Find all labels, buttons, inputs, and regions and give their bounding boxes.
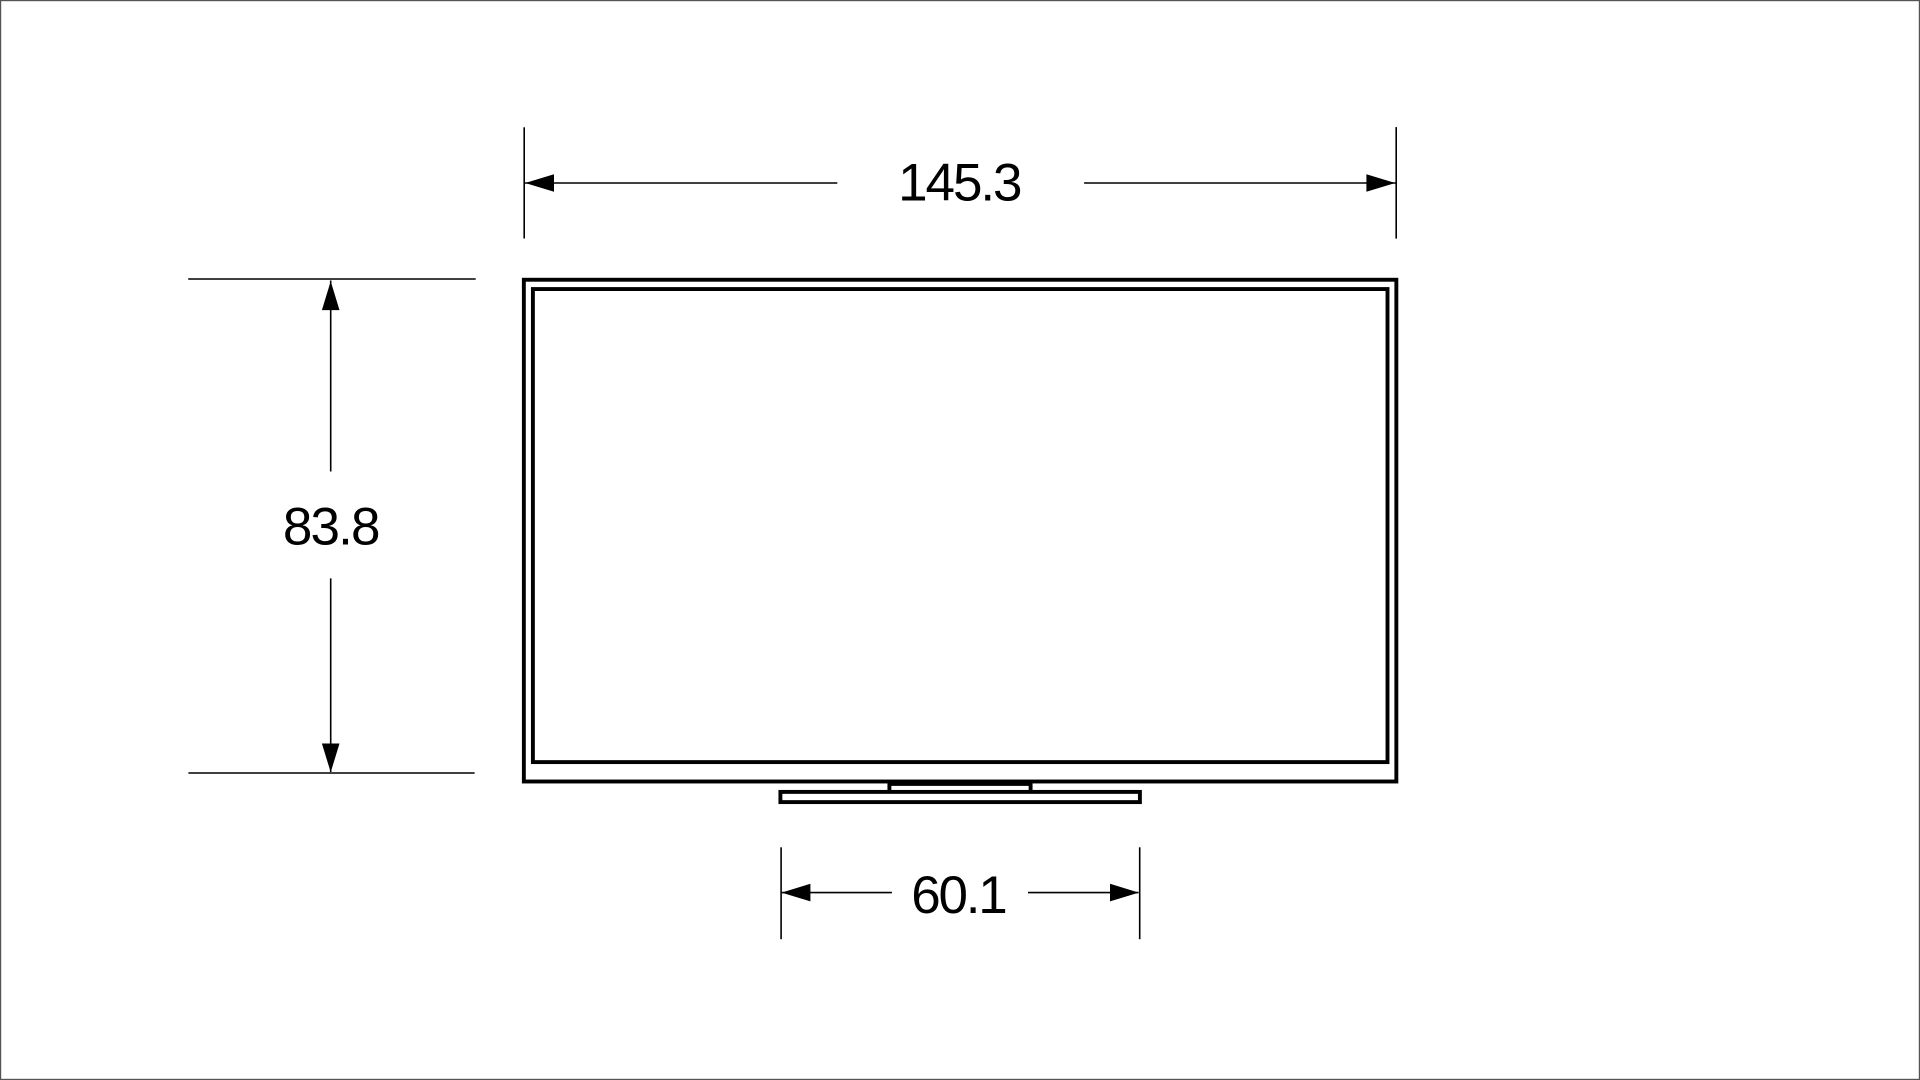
svg-text:60.1: 60.1: [911, 866, 1005, 925]
svg-text:145.3: 145.3: [898, 154, 1021, 213]
svg-text:83.8: 83.8: [283, 498, 379, 557]
